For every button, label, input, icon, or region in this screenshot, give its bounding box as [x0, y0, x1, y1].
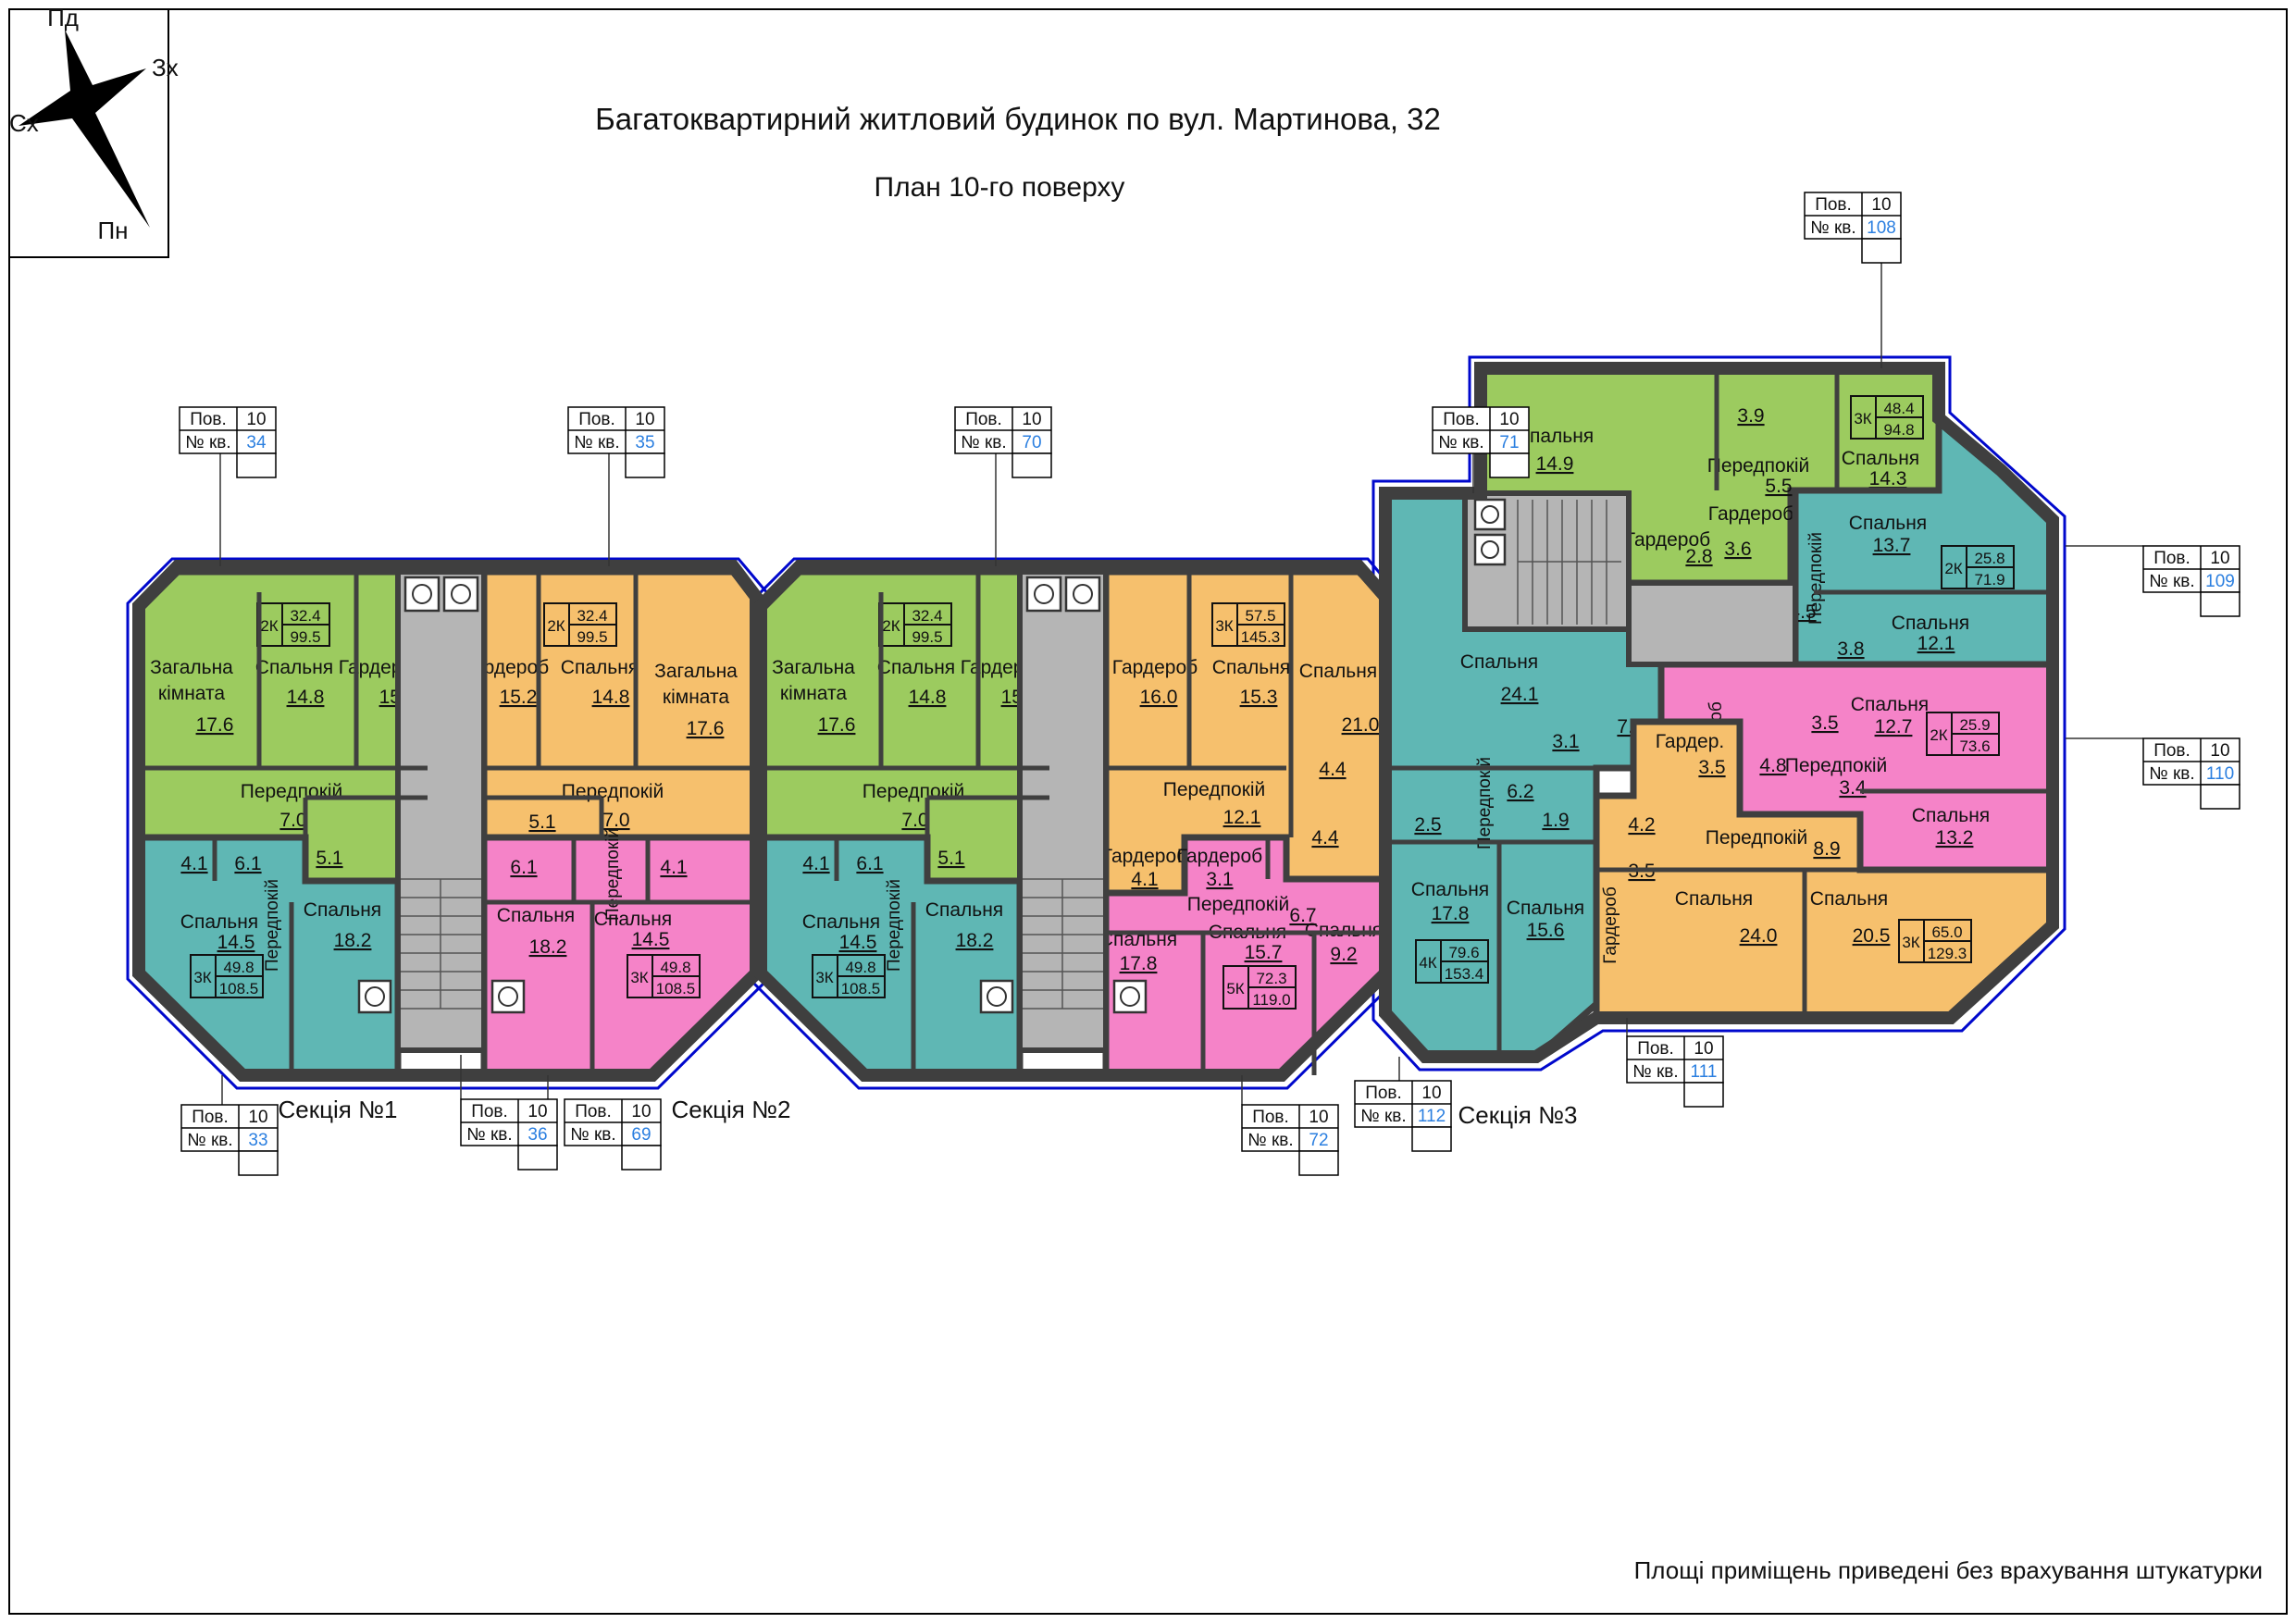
stat-total-area: 119.0: [1252, 991, 1290, 1009]
apartment-36: 6.1 Передпокій 4.1 Спальня 18.2 Спальня …: [484, 828, 756, 1075]
room-area: 18.2: [334, 930, 372, 951]
room-area: 17.8: [1432, 903, 1470, 924]
stat-living-area: 79.6: [1448, 944, 1479, 961]
callout-floor-value: 10: [1694, 1039, 1713, 1059]
room-area: 14.9: [1536, 453, 1574, 475]
room-label: Загальна: [772, 657, 855, 678]
room-area: 18.2: [956, 930, 994, 951]
room-area: 3.1: [1206, 869, 1233, 890]
room-area: 6.2: [1507, 781, 1533, 802]
callout-apt-label: № кв.: [961, 433, 1006, 452]
stat-rooms: 3К: [1215, 617, 1233, 635]
callout-apt-number: 36: [527, 1125, 547, 1145]
section1-label: Секція №1: [279, 1096, 398, 1123]
room-label: Спальня: [802, 911, 880, 933]
floor-plan-drawing: Пд Зх Сх Пн Багатоквартирний житловий бу…: [0, 0, 2296, 1623]
stat-total-area: 108.5: [841, 980, 881, 997]
stat-rooms: 2К: [1944, 560, 1962, 577]
callout-apt-label: № кв.: [185, 433, 230, 452]
callout-floor-label: Пов.: [2153, 741, 2191, 761]
callout-floor-value: 10: [1309, 1108, 1328, 1127]
callout-floor-value: 10: [631, 1102, 651, 1121]
stat-total-area: 108.5: [219, 980, 259, 997]
callout-apt-number: 70: [1022, 433, 1041, 452]
room-label: Спальня: [594, 909, 672, 930]
room-area: 17.8: [1120, 953, 1158, 974]
callout-apt-70: Пов. 10 № кв. 70: [955, 407, 1051, 477]
room-label: Спальня: [877, 657, 955, 678]
stat-rooms: 3К: [193, 969, 211, 986]
callout-floor-value: 10: [2210, 549, 2229, 568]
room-area: 12.1: [1223, 807, 1261, 828]
compass-top-label: Пд: [47, 4, 79, 31]
room-label: Передпокій: [1706, 827, 1808, 849]
room-area: 8.9: [1813, 838, 1840, 860]
stat-total-area: 99.5: [912, 628, 942, 646]
compass-right-label: Зх: [152, 54, 179, 81]
room-label: Спальня: [1810, 888, 1888, 910]
callout-floor-value: 10: [1421, 1084, 1441, 1103]
room-area: 4.1: [660, 857, 687, 878]
room-area: 2.5: [1414, 814, 1441, 836]
room-label: Спальня: [1299, 661, 1377, 682]
room-label: Спальня: [561, 657, 639, 678]
callout-apt-69: Пов. 10 № кв. 69: [565, 1099, 661, 1170]
room-area: 18.2: [529, 936, 567, 958]
room-area: 7.0: [901, 810, 928, 831]
page-subtitle: План 10-го поверху: [875, 172, 1125, 203]
section3-label: Секція №3: [1458, 1101, 1578, 1129]
callout-floor-label: Пов.: [965, 410, 1002, 429]
stat-rooms: 2К: [882, 617, 900, 635]
room-label: Спальня: [1675, 888, 1753, 910]
room-label: Спальня: [497, 905, 575, 926]
callout-floor-value: 10: [635, 410, 654, 429]
stat-rooms: 3К: [630, 969, 648, 986]
stat-total-area: 153.4: [1445, 965, 1484, 983]
callout-apt-number: 111: [1691, 1062, 1718, 1082]
callout-floor-value: 10: [1499, 410, 1519, 429]
stat-total-area: 99.5: [290, 628, 320, 646]
room-area: 3.9: [1737, 405, 1764, 427]
stat-living-area: 49.8: [660, 959, 690, 976]
stat-rooms: 2К: [260, 617, 278, 635]
callout-apt-label: № кв.: [1810, 218, 1855, 238]
callout-apt-112: Пов. 10 № кв. 112: [1355, 1081, 1451, 1151]
room-label: Спальня: [1507, 898, 1584, 919]
callout-apt-label: № кв.: [2149, 764, 2194, 784]
stat-total-area: 73.6: [1959, 737, 1990, 755]
room-label-vertical: Передпокій: [885, 879, 904, 972]
room-area: 14.3: [1869, 468, 1907, 489]
room-label-vertical: Передпокій: [1475, 757, 1495, 849]
room-label: Спальня: [180, 911, 258, 933]
room-area: 7.0: [279, 810, 306, 831]
callout-apt-label: № кв.: [570, 1125, 615, 1145]
room-area: 5.1: [316, 848, 342, 869]
callout-floor-value: 10: [1871, 195, 1891, 215]
callout-floor-label: Пов.: [2153, 549, 2191, 568]
room-area: 17.6: [196, 714, 234, 736]
callout-apt-label: № кв.: [1360, 1107, 1406, 1126]
callout-apt-72: Пов. 10 № кв. 72: [1242, 1105, 1338, 1175]
room-label: Спальня: [1892, 613, 1969, 634]
callout-apt-number: 109: [2205, 572, 2235, 591]
stairwell-section1: [398, 572, 484, 1050]
room-area: 3.1: [1552, 731, 1579, 752]
callout-apt-number: 35: [635, 433, 654, 452]
callout-apt-number: 112: [1418, 1107, 1446, 1126]
room-area: 4.4: [1319, 759, 1347, 780]
callout-apt-110: Пов. 10 № кв. 110: [2143, 738, 2240, 809]
room-label: кімната: [663, 687, 729, 708]
callout-floor-label: Пов.: [190, 410, 227, 429]
stat-total-area: 94.8: [1883, 421, 1914, 439]
stat-rooms: 3К: [1854, 410, 1871, 427]
room-label: Передпокій: [1785, 755, 1888, 776]
callout-apt-label: № кв.: [1632, 1062, 1678, 1082]
stat-rooms: 3К: [815, 969, 833, 986]
room-area: 20.5: [1853, 925, 1891, 947]
callout-apt-number: 108: [1867, 218, 1896, 238]
room-area: 15.6: [1527, 920, 1565, 941]
callout-floor-label: Пов.: [578, 410, 615, 429]
callout-apt-108: Пов. 10 № кв. 108: [1805, 192, 1901, 263]
callout-floor-label: Пов.: [1637, 1039, 1674, 1059]
callout-floor-label: Пов.: [575, 1102, 612, 1121]
room-area: 9.2: [1330, 944, 1357, 965]
callout-apt-35: Пов. 10 № кв. 35: [568, 407, 664, 477]
room-area: 15.3: [1240, 687, 1278, 708]
room-area: 13.7: [1873, 535, 1911, 556]
stat-rooms: 5К: [1226, 980, 1244, 997]
room-area: 5.1: [528, 811, 555, 833]
room-area: 14.8: [592, 687, 630, 708]
room-label: Спальня: [1912, 805, 1990, 826]
room-area: 4.2: [1628, 814, 1655, 836]
stat-total-area: 99.5: [577, 628, 607, 646]
room-area: 3.6: [1724, 539, 1751, 560]
stat-rooms: 3К: [1902, 934, 1919, 951]
room-area: 4.1: [180, 853, 207, 874]
room-area: 13.2: [1936, 827, 1974, 849]
callout-apt-number: 34: [246, 433, 267, 452]
footnote: Площі приміщень приведені без врахування…: [1634, 1556, 2263, 1584]
callout-floor-label: Пов.: [1443, 410, 1480, 429]
floor-plan-sheet: Пд Зх Сх Пн Багатоквартирний житловий бу…: [0, 0, 2296, 1623]
room-area: 4.4: [1311, 827, 1339, 849]
room-label: Загальна: [654, 661, 738, 682]
room-area: 4.1: [1131, 869, 1158, 890]
room-label: Гардероб: [1102, 846, 1187, 867]
compass-rose-icon: Пд Зх Сх Пн: [9, 4, 179, 257]
callout-apt-111: Пов. 10 № кв. 111: [1627, 1036, 1723, 1107]
room-label-vertical: Передпокій: [603, 828, 623, 921]
room-label: Спальня: [304, 899, 381, 921]
room-area: 12.1: [1917, 633, 1955, 654]
room-label: Передпокій: [1187, 894, 1290, 915]
compass-bottom-label: Пн: [97, 217, 128, 244]
room-area: 6.1: [856, 853, 883, 874]
room-label: Спальня: [1851, 694, 1929, 715]
callout-floor-label: Пов.: [1252, 1108, 1289, 1127]
room-area: 17.6: [818, 714, 856, 736]
room-label: Передпокій: [1707, 455, 1810, 477]
room-area: 21.0: [1342, 714, 1380, 736]
callout-apt-label: № кв.: [2149, 572, 2194, 591]
callout-apt-33: Пов. 10 № кв. 33: [181, 1105, 278, 1175]
stat-total-area: 145.3: [1241, 628, 1281, 646]
stat-living-area: 25.8: [1974, 550, 2004, 567]
room-label: кімната: [780, 683, 847, 704]
stat-living-area: 72.3: [1256, 970, 1286, 987]
room-area: 5.5: [1765, 476, 1792, 497]
compass-left-label: Сх: [9, 109, 39, 137]
callout-floor-value: 10: [1022, 410, 1041, 429]
stat-living-area: 32.4: [912, 607, 942, 625]
room-area: 4.1: [802, 853, 829, 874]
stairwell-section2: [1020, 572, 1106, 1050]
room-area: 14.8: [909, 687, 947, 708]
room-label: Спальня: [1842, 448, 1919, 469]
callout-apt-36: Пов. 10 № кв. 36: [461, 1099, 557, 1170]
page-title: Багатоквартирний житловий будинок по вул…: [595, 102, 1441, 136]
room-area: 14.5: [839, 932, 877, 953]
room-label: Спальня: [1460, 651, 1538, 673]
room-label: Гардер.: [1656, 731, 1725, 752]
callout-apt-number: 71: [1499, 433, 1519, 452]
callout-apt-label: № кв.: [187, 1131, 232, 1150]
room-label: Спальня: [1212, 657, 1290, 678]
stat-living-area: 49.8: [223, 959, 254, 976]
room-area: 3.8: [1837, 638, 1864, 660]
room-label: Гардероб: [1177, 846, 1262, 867]
room-area: 4.8: [1759, 755, 1786, 776]
room-label: Передпокій: [1163, 779, 1266, 800]
stat-rooms: 4К: [1419, 954, 1436, 972]
stat-living-area: 32.4: [290, 607, 320, 625]
section2-label: Секція №2: [672, 1096, 791, 1123]
callout-floor-value: 10: [527, 1102, 547, 1121]
callout-apt-number: 69: [631, 1125, 651, 1145]
room-label: Загальна: [150, 657, 233, 678]
room-area: 3.5: [1698, 757, 1725, 778]
room-area: 17.6: [687, 718, 725, 739]
room-area: 5.1: [937, 848, 964, 869]
stat-total-area: 108.5: [656, 980, 696, 997]
stat-living-area: 48.4: [1883, 400, 1914, 417]
callout-floor-value: 10: [246, 410, 266, 429]
callout-apt-number: 33: [248, 1131, 267, 1150]
callout-apt-34: Пов. 10 № кв. 34: [180, 407, 276, 477]
room-area: 14.5: [632, 929, 670, 950]
stat-rooms: 2К: [1930, 726, 1947, 744]
callout-apt-label: № кв.: [574, 433, 619, 452]
room-label: Гардероб: [1112, 657, 1198, 678]
room-label-vertical: Передпокій: [263, 879, 282, 972]
callout-floor-value: 10: [248, 1108, 267, 1127]
room-area: 15.2: [500, 687, 538, 708]
room-area: 24.0: [1740, 925, 1778, 947]
stat-living-area: 65.0: [1931, 923, 1962, 941]
callout-apt-label: № кв.: [1438, 433, 1483, 452]
callout-floor-label: Пов.: [471, 1102, 508, 1121]
room-label: Гардероб: [1708, 503, 1793, 525]
callout-apt-number: 72: [1309, 1131, 1328, 1150]
stat-rooms: 2К: [547, 617, 565, 635]
room-area: 1.9: [1542, 810, 1569, 831]
callout-apt-number: 110: [2206, 764, 2234, 784]
room-area: 7.0: [602, 810, 629, 831]
room-area: 12.7: [1875, 716, 1913, 737]
callout-apt-109: Пов. 10 № кв. 109: [2143, 546, 2240, 616]
stat-living-area: 25.9: [1959, 716, 1990, 734]
stat-total-area: 129.3: [1928, 945, 1967, 962]
room-area: 16.0: [1140, 687, 1178, 708]
callout-floor-value: 10: [2210, 741, 2229, 761]
room-area: 6.1: [510, 857, 537, 878]
stat-living-area: 57.5: [1245, 607, 1275, 625]
room-label: Спальня: [1849, 513, 1927, 534]
callout-floor-label: Пов.: [192, 1108, 229, 1127]
room-area: 14.5: [217, 932, 255, 953]
room-label-vertical: Гардероб: [1601, 886, 1620, 964]
room-area: 3.4: [1839, 777, 1867, 799]
room-area: 15.7: [1245, 942, 1283, 963]
stat-living-area: 49.8: [845, 959, 875, 976]
room-area: 6.1: [234, 853, 261, 874]
callout-floor-label: Пов.: [1365, 1084, 1402, 1103]
callout-apt-label: № кв.: [466, 1125, 512, 1145]
stat-living-area: 32.4: [577, 607, 607, 625]
room-area: 24.1: [1501, 684, 1539, 705]
room-label: Спальня: [1411, 879, 1489, 900]
stat-total-area: 71.9: [1974, 571, 2004, 588]
room-label: Спальня: [925, 899, 1003, 921]
callout-apt-label: № кв.: [1247, 1131, 1293, 1150]
room-area: 3.5: [1811, 712, 1838, 734]
room-area: 2.8: [1685, 546, 1712, 567]
room-area: 14.8: [287, 687, 325, 708]
room-label: Спальня: [255, 657, 333, 678]
callout-floor-label: Пов.: [1815, 195, 1852, 215]
room-label: кімната: [158, 683, 225, 704]
